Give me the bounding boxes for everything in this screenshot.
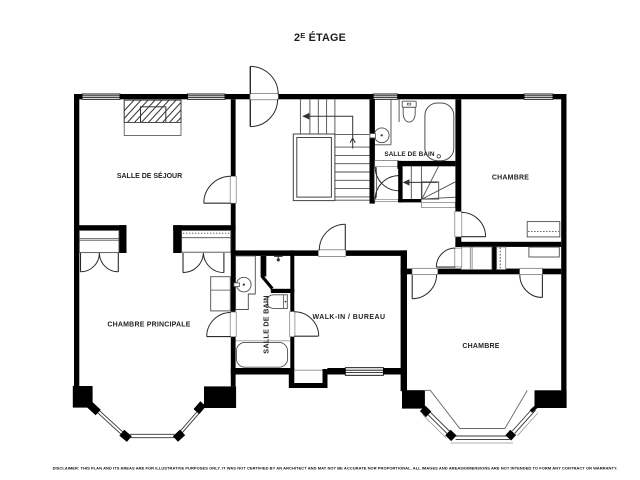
svg-text:CHAMBRE: CHAMBRE	[462, 343, 499, 350]
svg-text:2E ÉTAGE: 2E ÉTAGE	[294, 31, 346, 44]
svg-text:WALK-IN / BUREAU: WALK-IN / BUREAU	[313, 314, 386, 321]
svg-text:SALLE DE SÉJOUR: SALLE DE SÉJOUR	[117, 171, 182, 180]
svg-text:CHAMBRE PRINCIPALE: CHAMBRE PRINCIPALE	[107, 321, 190, 328]
svg-text:SALLE DE BAIN: SALLE DE BAIN	[261, 295, 270, 353]
svg-text:DISCLAIMER: THIS PLAN AND ITS: DISCLAIMER: THIS PLAN AND ITS AREAS ARE …	[53, 465, 618, 470]
svg-text:SALLE DE BAIN: SALLE DE BAIN	[384, 151, 435, 158]
svg-text:CHAMBRE: CHAMBRE	[492, 174, 529, 181]
